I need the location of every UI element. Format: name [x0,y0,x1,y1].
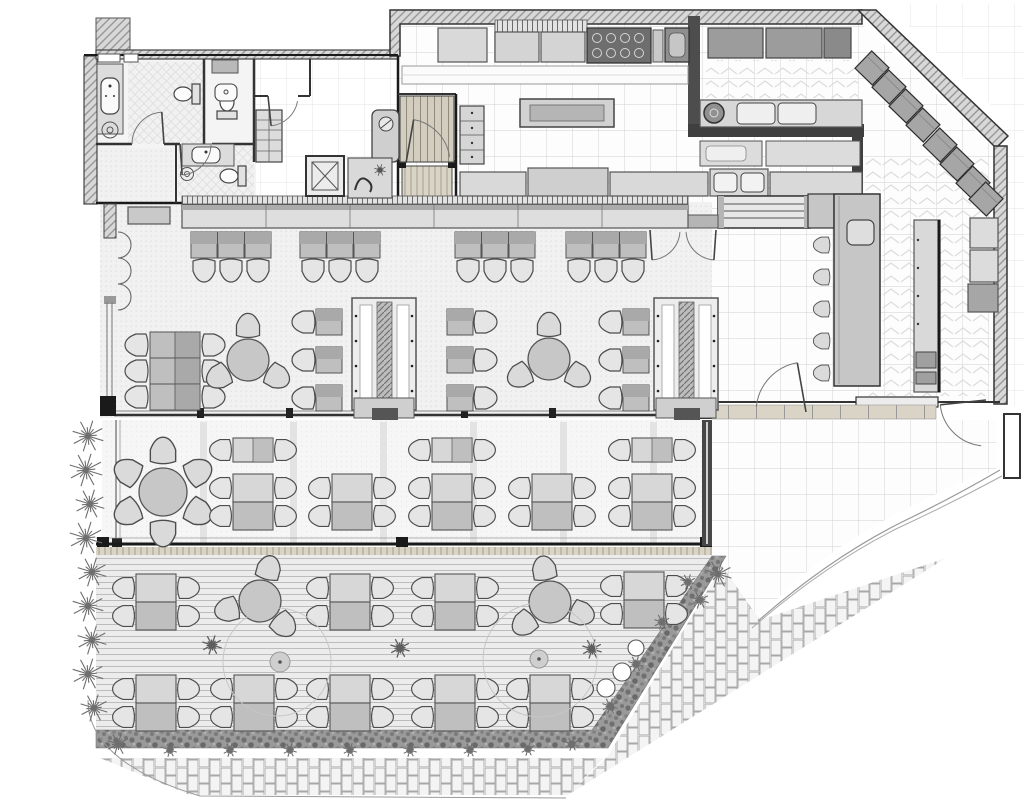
paver-walk [100,758,604,795]
toilet-tank [217,111,237,119]
shape-rect [218,232,244,244]
storage-floor [98,148,174,202]
round-table [239,580,281,622]
shape-rect [286,408,293,418]
partition-screen [654,298,718,420]
stepping-stone [597,679,615,697]
plan-circle [917,295,919,297]
table [330,675,370,703]
host-stand [128,207,170,224]
dot [657,365,660,368]
two-top-table [593,232,619,282]
bar-sink [737,103,775,124]
plan-circle [917,323,919,325]
shape-rect [316,347,342,359]
plan-circle [113,95,115,97]
cabinet [708,28,763,58]
shape-rect [316,309,342,321]
tree-trunk [408,748,411,751]
two-top-table [218,232,244,282]
shape-rect [104,204,116,238]
tree [76,490,105,519]
shape-rect [377,302,392,406]
shape-rect [679,302,694,406]
shape-rect [593,232,619,244]
table [136,602,176,630]
shape-rect [360,305,372,403]
dot [713,365,716,368]
table [330,703,370,731]
plan-circle [109,85,112,88]
shape-rect [175,358,200,384]
tree-trunk [526,747,529,750]
dot [355,365,358,368]
four-top-table [125,332,225,358]
shape-rect [327,232,353,244]
tree-trunk [686,580,689,583]
shape-rect [300,232,326,244]
tree-trunk [634,662,637,665]
dot [355,390,358,393]
shape-rect [530,105,604,121]
tree-trunk [398,646,401,649]
restaurant-floor-plan [0,0,1024,807]
shape-rect [808,194,834,228]
wall-cabinet [970,250,998,282]
banquette-wall [182,196,688,204]
tree-trunk [90,638,93,641]
tree-trunk [168,748,171,751]
pier [1004,414,1020,478]
plan-circle [471,156,473,158]
plan-circle [917,267,919,269]
table [330,574,370,602]
shape-rect [397,305,409,403]
wall-cabinet [970,218,998,248]
tree-trunk [116,742,119,745]
shape-rect [124,54,138,62]
shape-rect [652,438,672,462]
table [136,675,176,703]
table [136,574,176,602]
tree-trunk [570,742,573,745]
tree-trunk [92,706,95,709]
two-top-table [354,232,380,282]
table [432,474,472,502]
dot [657,340,660,343]
tree-trunk [228,748,231,751]
floor-plan-page [0,0,1024,807]
tree-trunk [90,570,93,573]
two-top-table [447,385,497,411]
shape-rect [455,232,481,244]
dot [411,365,414,368]
table [632,474,672,502]
plan-circle [917,239,919,241]
shape-rect [447,309,473,321]
table [330,602,370,630]
dot [411,390,414,393]
two-top-table [292,347,342,373]
shape-rect [104,296,116,304]
tree-trunk [86,434,89,437]
wall-rack [495,20,587,32]
shape-rect [706,146,746,161]
kitchen-wing-wall [688,16,700,128]
two-top-table [609,438,696,462]
shape-rect [623,347,649,359]
counter [610,172,708,196]
dot [411,340,414,343]
two-top-table [245,232,271,282]
tree [73,421,104,452]
shape-rect [549,408,556,418]
shape-rect [245,232,271,244]
pos-terminal [847,220,874,245]
plan-circle [537,657,541,661]
tree-trunk [86,604,89,607]
toilet-bowl [220,169,238,183]
shape-rect [741,173,764,192]
shape-rect [175,384,200,410]
plan-circle [471,142,473,144]
tree-trunk [716,572,719,575]
shape-rect [699,305,711,403]
counter [766,141,860,166]
table [233,502,273,530]
shape-rect [452,438,472,462]
shape-rect [916,352,936,368]
tree-trunk [210,643,213,646]
two-top-table [566,232,592,282]
shape-rect [669,33,685,57]
equipment-box [968,284,998,312]
service-counter [718,196,810,228]
plan-circle [278,660,282,664]
shape-rect [354,232,380,244]
table [532,474,572,502]
four-top-table [125,384,225,410]
shape-rect [482,232,508,244]
shape-rect [175,332,200,358]
shape-rect [674,408,700,420]
two-top-table [482,232,508,282]
tree-trunk [660,620,663,623]
oven [495,32,539,62]
dot [713,390,716,393]
round-table [529,581,571,623]
shape-rect [714,173,737,192]
table [234,675,274,703]
bar-sink [778,103,816,124]
shape-rect [316,385,342,397]
lavatory [101,78,119,114]
dot [411,315,414,318]
two-top-table [599,347,649,373]
shape-rect [653,30,663,62]
stepping-stone [613,663,631,681]
two-top-table [210,438,297,462]
plan-circle [471,112,473,114]
west-wall [84,56,97,204]
dot [657,390,660,393]
tree-trunk [84,536,87,539]
tree-trunk [590,647,593,650]
two-top-table [509,232,535,282]
tree-trunk [86,672,89,675]
oven [541,32,585,62]
stepping-stone [628,640,644,656]
shape-rect [916,372,936,384]
partition-screen [352,298,416,420]
basin [215,84,237,101]
cabinet [824,28,851,58]
round-table [227,339,269,381]
two-top-table [599,385,649,411]
two-top-table [409,438,496,462]
shape-rect [718,196,724,228]
shape-rect [182,205,688,210]
two-top-table [191,232,217,282]
two-top-table [599,309,649,335]
plan-circle [205,151,208,154]
shape-rect [706,60,858,98]
round-table [139,468,187,516]
tree-trunk [608,704,611,707]
dot [355,315,358,318]
two-top-table [292,309,342,335]
two-top-table [620,232,646,282]
table [632,502,672,530]
shape-rect [509,232,535,244]
tree-trunk [88,502,91,505]
shape-rect [620,232,646,244]
shape-rect [98,54,120,62]
cabinet [766,28,822,58]
counter [528,168,608,196]
wok-burner [704,103,724,123]
dot [713,315,716,318]
tree-trunk [84,468,87,471]
table [624,572,664,600]
dot [657,315,660,318]
shape-rect [662,305,674,403]
tree-trunk [348,748,351,751]
table [432,502,472,530]
tree-trunk [288,748,291,751]
shape-rect [447,385,473,397]
dot [713,340,716,343]
shape-rect [623,385,649,397]
table [234,703,274,731]
two-top-table [327,232,353,282]
shape-rect [566,232,592,244]
round-table [528,338,570,380]
shelf [212,60,238,73]
two-top-table [292,385,342,411]
toilet-tank [238,166,246,186]
table [332,502,372,530]
shape-rect [191,232,217,244]
table [435,675,475,703]
shape-rect [253,438,273,462]
two-top-table [455,232,481,282]
shape-rect [623,309,649,321]
tree-trunk [468,748,471,751]
shape-rect [372,408,398,420]
deck-edge-board [96,547,712,555]
prep-counter [438,28,487,62]
shape-rect [100,396,116,416]
table [435,602,475,630]
counter [460,172,526,196]
shape-rect [447,347,473,359]
tree-trunk [698,598,701,601]
plan-circle [105,95,107,97]
counter [770,172,862,196]
plan-circle [471,127,473,129]
dot [355,340,358,343]
tree-trunk [378,168,381,171]
table [233,474,273,502]
table [332,474,372,502]
table [435,703,475,731]
tree [70,454,102,486]
table [532,502,572,530]
table [435,574,475,602]
table [530,675,570,703]
two-top-table [447,309,497,335]
toilet-tank [192,84,200,104]
table [136,703,176,731]
planter-sill [712,405,936,419]
toilet-bowl [174,87,192,101]
two-top-table [447,347,497,373]
two-top-table [300,232,326,282]
